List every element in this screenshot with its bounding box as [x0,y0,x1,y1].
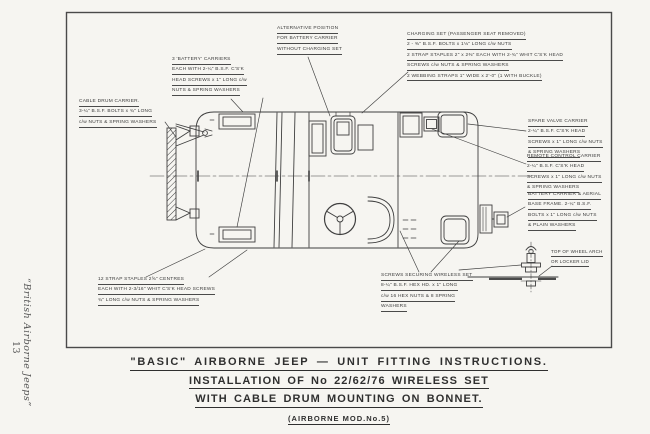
label-line: HEAD SCREWS x 1" LONG c/w [172,79,247,86]
label-line: WASHERS [381,305,407,312]
label-line: ¾" LONG c/w NUTS & SPRING WASHERS [98,299,199,306]
leader-battery-top [231,99,243,112]
label-alternative-position: ALTERNATIVE POSITION FOR BATTERY CARRIER… [277,27,342,58]
label-line: CHARGING SET (PASSENGER SEAT REMOVED) [407,33,526,40]
label-line: 2-¼" B.S.F. C'S'K HEAD [527,165,584,172]
label-line: EACH WITH 2-¼" B.S.F. C'S'K [172,68,244,75]
label-line: EACH WITH 2-3/16" WHIT C'S'K HEAD SCREWS [98,288,215,295]
label-line: WITHOUT CHARGING SET [277,48,342,55]
label-line: REMOTE CONTROL CARRIER [527,155,601,162]
title-line-3: WITH CABLE DRUM MOUNTING ON BONNET. [195,393,482,408]
charging-set-group [309,112,373,156]
leader-remote-control [432,129,526,164]
label-line: SCREWS x 1" LONG c/w NUTS [528,141,603,148]
label-line: 3 'BATTERY' CARRIERS [172,58,231,65]
driver-seat [368,197,394,243]
leader-spare-valve [468,124,526,131]
label-line: 8-¼" B.S.F. HEX HD. x 1" LONG [381,284,458,291]
scanned-page: ALTERNATIVE POSITION FOR BATTERY CARRIER… [0,0,650,434]
label-line: SCREWS c/w NUTS & SPRING WASHERS [407,64,509,71]
label-line: 3-¼" B.S.F. BOLTS x ¾" LONG [79,110,152,117]
page-title: "BASIC" AIRBORNE JEEP — UNIT FITTING INS… [130,356,547,371]
rear-carriers [400,112,469,244]
cable-drum-assembly [167,124,212,220]
label-line: SCREWS SECURING WIRELESS SET [381,274,473,281]
label-line: CABLE DRUM CARRIER. [79,100,139,107]
label-line: OR LOCKER LID [551,260,589,267]
label-cable-drum-carrier: CABLE DRUM CARRIER. 3-¼" B.S.F. BOLTS x … [79,100,157,131]
label-line: SPARE VALVE CARRIER [528,120,588,127]
wheel-arch-detail [468,242,558,292]
label-line: TOP OF WHEEL ARCH [551,250,603,257]
label-line: NUTS & SPRING WASHERS [172,89,240,96]
leader-screws-left [400,231,419,272]
label-line: 2 STRAP STAPLES 2" x 2⅜" EACH WITH 2-¾" … [407,54,563,61]
label-screws-securing-wireless: SCREWS SECURING WIRELESS SET 8-¼" B.S.F.… [381,274,473,316]
label-line: 2-¼" B.S.F. C'S'K HEAD [528,130,585,137]
label-line: & PLAIN WASHERS [528,224,576,231]
label-remote-control-carrier: REMOTE CONTROL CARRIER 2-¼" B.S.F. C'S'K… [527,155,602,197]
label-wheel-arch: TOP OF WHEEL ARCH OR LOCKER LID [551,250,603,270]
label-strap-staples: 12 STRAP STAPLES 2⅝" CENTRES EACH WITH 2… [98,278,215,309]
label-line: ALTERNATIVE POSITION [277,27,338,34]
title-line-2: INSTALLATION OF No 22/62/76 WIRELESS SET [189,375,489,390]
leader-alt-position [308,57,330,116]
margin-caption: “British Airborne Jeeps” 13 [10,252,32,432]
label-charging-set: CHARGING SET (PASSENGER SEAT REMOVED) 2 … [407,33,563,85]
steering-wheel [325,204,356,235]
label-battery-carriers: 3 'BATTERY' CARRIERS EACH WITH 2-¼" B.S.… [172,58,247,100]
label-line: c/w 16 HEX NUTS & 8 SPRING [381,295,455,302]
label-line: BOLTS x 1" LONG c/w NUTS [528,214,597,221]
page-number: 13 [10,341,21,354]
label-line: FOR BATTERY CARRIER [277,37,338,44]
leader-staples-right [209,250,247,277]
label-line: BASE FRAME. 2-¼" B.S.F. [528,203,591,210]
book-title: “British Airborne Jeeps” [21,278,32,407]
title-mod-note: (AIRBORNE MOD.No.5) [288,414,390,426]
label-line: 2 - ⅜" B.S.F. BOLTS x 1⅛" LONG c/w NUTS [407,43,512,50]
label-line: c/w NUTS & SPRING WASHERS [79,121,157,128]
leader-staples-left [146,249,205,277]
leader-battery-aerial [507,207,525,217]
leader-screws-right [431,241,459,272]
bonnet-battery-carriers [210,114,255,242]
label-line: 2 WEBBING STRAPS 1" WIDE x 2'-0" (1 WITH… [407,75,542,82]
label-line: BATTERY CARRIER & AERIAL [528,193,601,200]
title-block: "BASIC" AIRBORNE JEEP — UNIT FITTING INS… [66,352,612,426]
aerial-base-frame [480,205,508,233]
label-line: 12 STRAP STAPLES 2⅝" CENTRES [98,278,184,285]
leader-charging-set [362,72,408,113]
leader-screws-detail [459,265,521,270]
label-battery-carrier-aerial: BATTERY CARRIER & AERIAL BASE FRAME. 2-¼… [528,193,601,235]
label-line: SCREWS x 1" LONG c/w NUTS [527,176,602,183]
